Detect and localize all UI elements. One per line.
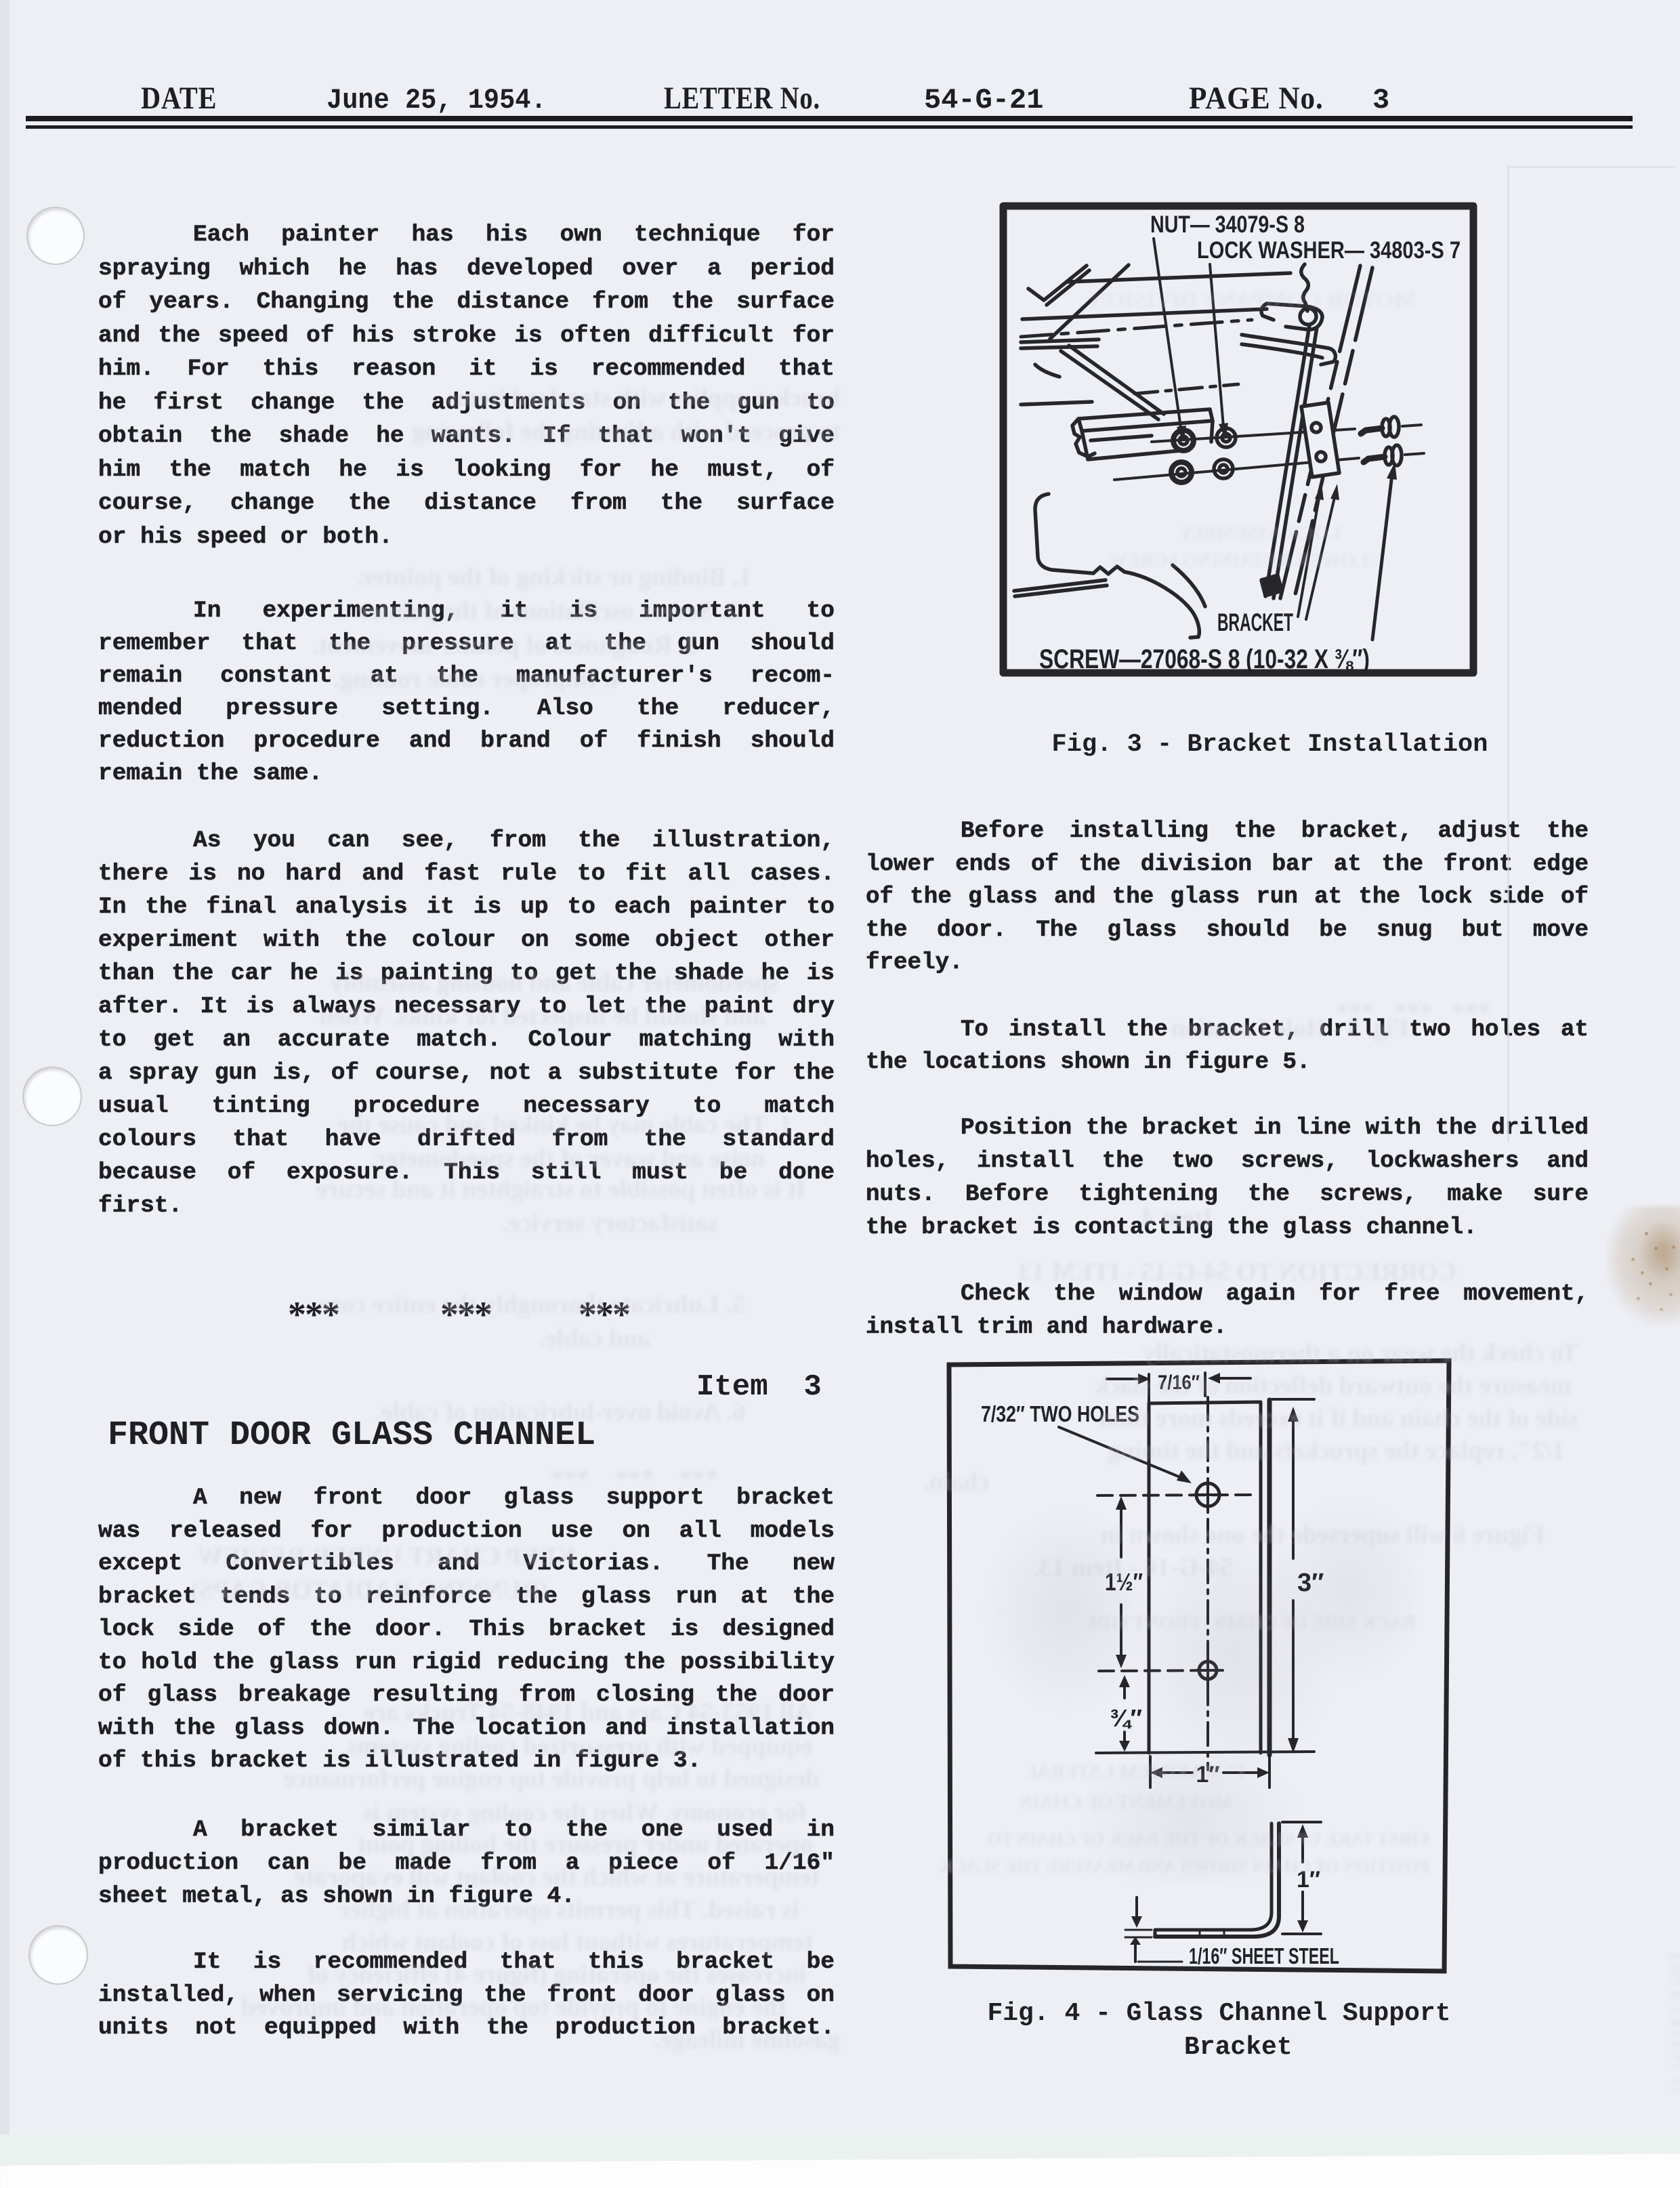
svg-text:NUT— 34079-S 8: NUT— 34079-S 8 (1150, 211, 1305, 238)
svg-text:1/16″ SHEET STEEL: 1/16″ SHEET STEEL (1189, 1943, 1339, 1968)
svg-text:BRACKET: BRACKET (1217, 608, 1293, 636)
svg-text:LOCK WASHER— 34803-S 7: LOCK WASHER— 34803-S 7 (1197, 237, 1461, 264)
svg-text:SCREW—27068-S 8 (10-32 X ⅜″): SCREW—27068-S 8 (10-32 X ⅜″) (1039, 644, 1370, 674)
